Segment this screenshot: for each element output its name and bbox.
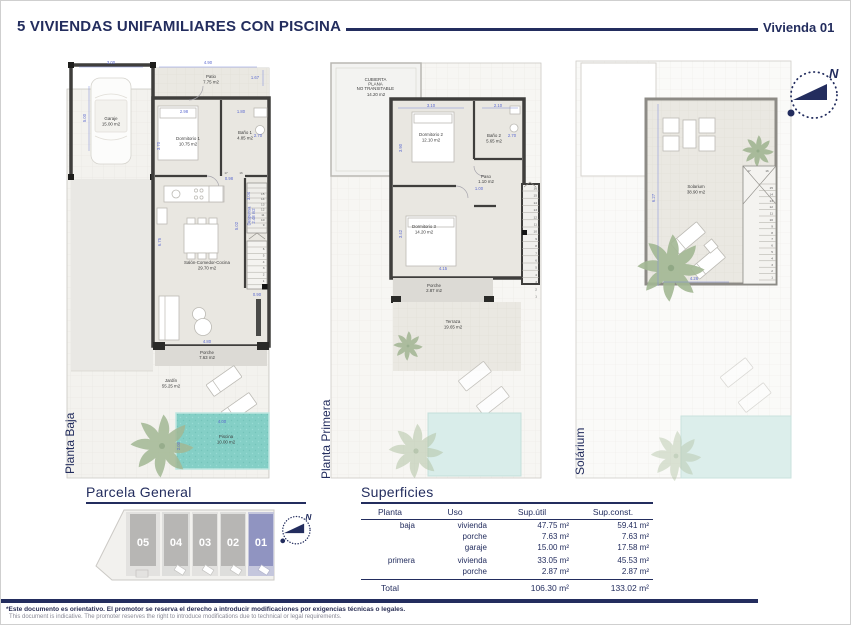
- table-total-row: Total 106.30 m²133.02 m²: [361, 580, 653, 595]
- table-row: garaje15.00 m²17.58 m²: [361, 542, 653, 553]
- plot-03: 03: [192, 512, 218, 576]
- superficies-rule: [361, 502, 653, 504]
- page-title: 5 VIVIENDAS UNIFAMILIARES CON PISCINA: [17, 18, 341, 35]
- svg-text:8: 8: [771, 231, 773, 235]
- plot-02: 02: [220, 512, 246, 576]
- svg-text:6: 6: [535, 259, 537, 263]
- room-label-porche: Porche7.63 m2: [199, 350, 215, 360]
- stairs-upper: 1514131211109 Despensa 2.48 m2: [247, 183, 268, 233]
- svg-text:3.90: 3.90: [398, 143, 403, 152]
- svg-text:1.00: 1.00: [475, 186, 484, 191]
- svg-text:13: 13: [261, 202, 265, 206]
- svg-text:5.00: 5.00: [82, 113, 87, 122]
- svg-text:9: 9: [535, 237, 537, 241]
- col-sup-util: Sup.útil: [491, 506, 573, 520]
- svg-text:16: 16: [534, 187, 538, 191]
- svg-text:2: 2: [263, 273, 265, 277]
- svg-text:4.00: 4.00: [218, 419, 227, 424]
- svg-text:4: 4: [535, 273, 537, 277]
- svg-text:2.98: 2.98: [180, 109, 189, 114]
- footer-disclaimer-en: This document is indicative. The promote…: [9, 614, 341, 620]
- sink: [254, 108, 267, 117]
- svg-text:6: 6: [263, 247, 265, 251]
- unit-label: Vivienda 01: [763, 20, 834, 35]
- svg-text:4.90: 4.90: [204, 60, 213, 65]
- svg-text:2.00: 2.00: [176, 441, 181, 450]
- svg-text:15: 15: [534, 194, 538, 198]
- svg-text:6: 6: [771, 244, 773, 248]
- svg-text:10: 10: [534, 230, 538, 234]
- svg-text:5.02: 5.02: [234, 221, 239, 230]
- svg-text:N: N: [829, 66, 839, 81]
- stairs-lower: 654321: [247, 233, 268, 290]
- svg-text:12: 12: [770, 205, 774, 209]
- svg-text:3.10: 3.10: [427, 103, 436, 108]
- room-label-porche: Porche2.87 m2: [426, 283, 442, 293]
- footer-disclaimer-es: *Este documento es orientativo. El promo…: [6, 606, 405, 613]
- svg-text:9: 9: [263, 223, 265, 227]
- dim: 3.00: [107, 60, 116, 65]
- col-sup-const: Sup.const.: [573, 506, 653, 520]
- svg-text:12: 12: [261, 208, 265, 212]
- room-label-dormitorio3: Dormitorio 314.20 m2: [412, 224, 436, 235]
- room-label-solarium: Solarium38.90 m2: [687, 184, 706, 195]
- footer-bar: [1, 599, 758, 603]
- porche-floor: [393, 278, 493, 302]
- svg-text:16: 16: [765, 169, 769, 173]
- svg-text:3: 3: [535, 280, 537, 284]
- svg-text:14: 14: [770, 192, 774, 196]
- svg-text:4.15: 4.15: [439, 266, 448, 271]
- planta-baja-plan: 1514131211109 Despensa 2.48 m2 654321 Ga…: [59, 56, 305, 480]
- parcela-compass-icon: N: [278, 510, 316, 548]
- svg-text:12: 12: [534, 215, 538, 219]
- svg-text:1: 1: [263, 279, 265, 283]
- room-label-bano2: Baño 25.65 m2: [486, 133, 502, 144]
- svg-text:3.70: 3.70: [156, 141, 161, 150]
- svg-text:5: 5: [535, 266, 537, 270]
- svg-text:4: 4: [771, 256, 773, 260]
- svg-text:15: 15: [261, 192, 265, 196]
- north-compass-icon: N: [783, 61, 847, 125]
- svg-text:17: 17: [747, 169, 751, 173]
- plan-label-planta-baja: Planta Baja: [63, 413, 77, 474]
- svg-text:14: 14: [261, 197, 265, 201]
- svg-text:15: 15: [770, 186, 774, 190]
- svg-text:2.48 m2: 2.48 m2: [251, 208, 256, 224]
- svg-text:0.90: 0.90: [253, 292, 262, 297]
- svg-text:2: 2: [535, 287, 537, 291]
- svg-text:03: 03: [199, 537, 211, 549]
- table-row: primeravivienda33.05 m²45.53 m²: [361, 555, 653, 566]
- dining-table: [184, 218, 218, 259]
- svg-text:05: 05: [137, 537, 149, 549]
- svg-text:3: 3: [771, 263, 773, 267]
- svg-text:0.98: 0.98: [225, 176, 234, 181]
- svg-text:7: 7: [771, 237, 773, 241]
- svg-text:10: 10: [261, 218, 265, 222]
- svg-text:2: 2: [771, 269, 773, 273]
- svg-text:9: 9: [771, 224, 773, 228]
- stairs: 17 16 151413121110987654321: [743, 166, 776, 284]
- svg-text:13: 13: [770, 199, 774, 203]
- plot-01-highlighted: 01: [248, 512, 274, 576]
- svg-text:1.67: 1.67: [251, 75, 260, 80]
- plan-label-planta-primera: Planta Primera: [319, 400, 333, 479]
- svg-text:4.26: 4.26: [690, 276, 699, 281]
- plan-label-solarium: Solárium: [573, 428, 587, 475]
- svg-text:11: 11: [261, 213, 264, 217]
- svg-text:5: 5: [771, 250, 773, 254]
- room-label-dormitorio2: Dormitorio 212.10 m2: [419, 132, 443, 143]
- svg-text:02: 02: [227, 537, 239, 549]
- svg-text:16: 16: [239, 171, 243, 175]
- svg-text:8: 8: [535, 244, 537, 248]
- parcela-title: Parcela General: [86, 484, 192, 500]
- pool-faded: [428, 413, 521, 476]
- svg-text:3.42: 3.42: [398, 229, 403, 238]
- tv-bench: [256, 299, 261, 336]
- pool-faded: [681, 416, 791, 478]
- superficies-title: Superficies: [361, 484, 434, 500]
- table-row: porche7.63 m²7.63 m²: [361, 531, 653, 542]
- svg-text:1.80: 1.80: [237, 109, 246, 114]
- header-rule: [346, 28, 758, 31]
- driveway: [71, 179, 153, 371]
- svg-text:4: 4: [263, 260, 265, 264]
- svg-text:3.04: 3.04: [246, 191, 251, 200]
- room-label-dormitorio1: Dormitorio 110.75 m2: [176, 136, 200, 147]
- svg-text:4.80: 4.80: [203, 339, 212, 344]
- svg-text:10: 10: [770, 218, 774, 222]
- svg-text:3: 3: [263, 266, 265, 270]
- svg-text:01: 01: [255, 537, 267, 549]
- svg-text:11: 11: [534, 223, 537, 227]
- svg-text:2.10: 2.10: [494, 103, 503, 108]
- plan-sheet-page: 5 VIVIENDAS UNIFAMILIARES CON PISCINA Vi…: [0, 0, 851, 625]
- svg-text:04: 04: [170, 537, 183, 549]
- col-planta: Planta: [361, 506, 419, 520]
- room-label-bano1: Baño 14.85 m2: [237, 130, 253, 141]
- bed-dormitorio1: [158, 106, 198, 160]
- svg-text:11: 11: [770, 212, 773, 216]
- sink: [510, 106, 520, 114]
- room-label-terraza: Terraza19.65 m2: [444, 319, 463, 330]
- svg-text:14: 14: [534, 201, 538, 205]
- svg-text:1: 1: [771, 276, 773, 280]
- toilet: [510, 124, 518, 132]
- svg-text:7: 7: [535, 251, 537, 255]
- svg-text:6.27: 6.27: [651, 193, 656, 202]
- planta-primera-plan: CUBIERTA PLANA NO TRANSITABLE 14.20 m2 1…: [326, 56, 542, 481]
- plot-04: 04: [162, 512, 190, 576]
- svg-text:17: 17: [224, 171, 228, 175]
- room-label-piscina: Piscina10.00 m2: [217, 434, 236, 445]
- plot-05: 05: [126, 512, 160, 577]
- table-row: bajavivienda47.75 m²59.41 m²: [361, 520, 653, 532]
- col-uso: Uso: [419, 506, 491, 520]
- svg-text:N: N: [305, 512, 312, 522]
- table-header-row: Planta Uso Sup.útil Sup.const.: [361, 506, 653, 520]
- parcela-rule: [86, 502, 306, 504]
- svg-text:1: 1: [535, 295, 537, 299]
- svg-text:6.75: 6.75: [157, 237, 162, 246]
- superficies-table: Planta Uso Sup.útil Sup.const. bajavivie…: [361, 506, 653, 594]
- terraza-floor: [393, 302, 521, 371]
- solarium-plan: 17 16 151413121110987654321 Solarium38.9…: [571, 56, 793, 481]
- svg-text:5: 5: [263, 253, 265, 257]
- svg-text:13: 13: [534, 208, 538, 212]
- svg-text:2.70: 2.70: [508, 133, 517, 138]
- table-row: porche2.87 m²2.87 m²: [361, 566, 653, 577]
- svg-text:2.70: 2.70: [254, 133, 263, 138]
